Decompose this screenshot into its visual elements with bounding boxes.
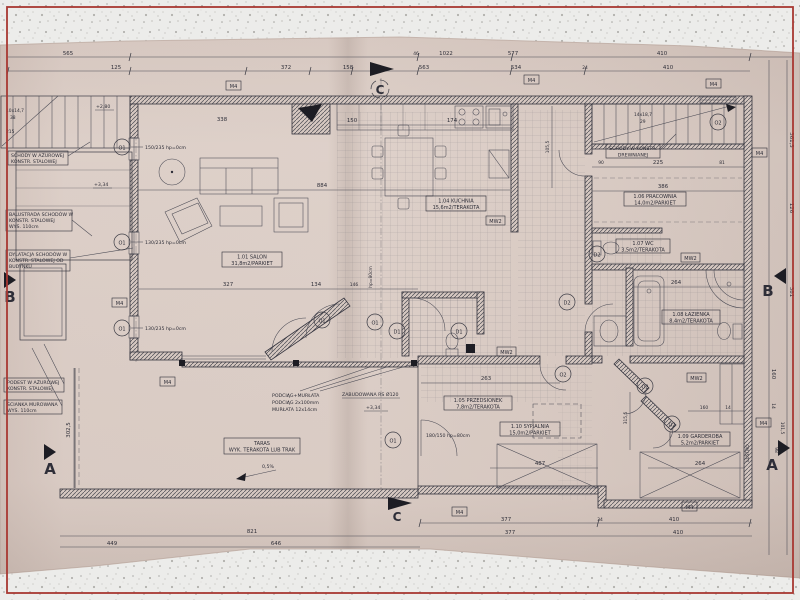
room-pracownia-line1: 1.06 PRACOWNIA — [633, 194, 677, 200]
svg-text:M4: M4 — [528, 78, 536, 84]
svg-text:D1: D1 — [455, 330, 462, 336]
win-spec-150-235: 150/235 hp=0cm — [145, 145, 186, 151]
dim-top-125: 125 — [111, 65, 121, 71]
svg-text:M4: M4 — [760, 421, 768, 427]
floor-plan-svg: 565 1022 46 577 410 125 372 158 563 534 … — [0, 0, 800, 600]
dim-inner-315-5: 315,5 — [623, 412, 629, 425]
dim-inner-146: 146 — [350, 282, 359, 288]
ann-lvl-334-terrace: +3,34 — [366, 405, 380, 411]
dim-inner-338: 338 — [217, 117, 228, 123]
ann-scianka-1: ŚCIANKA MUROWANA — [7, 401, 59, 408]
dim-bottom-34: 34 — [597, 517, 603, 523]
dim-bottom-377b: 377 — [505, 530, 515, 536]
svg-text:D2: D2 — [593, 253, 600, 259]
svg-text:B: B — [4, 288, 15, 306]
ann-schody-azur-1: SCHODY W AŻUROWEJ — [11, 152, 64, 159]
dim-top-577: 577 — [508, 51, 518, 57]
room-lazienka-line1: 1.08 ŁAZIENKA — [672, 312, 710, 318]
svg-text:O2: O2 — [668, 423, 675, 429]
ann-schody-drewn-1: SCHODY W KONSTR. — [609, 146, 657, 152]
win-spec-180-150: 180/150 hp=80cm — [426, 433, 470, 439]
dim-inner-264: 264 — [671, 280, 682, 286]
room-kuchnia-line1: 1.04 KUCHNIA — [438, 199, 474, 205]
dim-inner-487: 487 — [535, 461, 545, 467]
svg-text:O2: O2 — [641, 385, 648, 391]
svg-text:MW2: MW2 — [500, 350, 512, 356]
svg-text:M4: M4 — [116, 301, 124, 307]
win-spec-130-235-b: 130/235 hp=0cm — [145, 326, 186, 332]
screenshot-root: 565 1022 46 577 410 125 372 158 563 534 … — [0, 0, 800, 600]
dim-inner-225: 225 — [653, 160, 663, 166]
room-sypialnia-line2: 15,0m2/PARKIET — [509, 431, 551, 437]
svg-text:M4: M4 — [230, 84, 238, 90]
svg-text:O1: O1 — [118, 146, 125, 152]
ann-podciag-1: PODCIĄG+MURŁATA — [272, 393, 320, 399]
dim-inner-105-5: 105,5 — [545, 141, 551, 154]
dim-inner-264b: 264 — [695, 461, 706, 467]
dim-inner-134: 134 — [311, 282, 322, 288]
ann-podest-1: PODEST W AŻUROWEJ — [7, 379, 59, 386]
dim-inner-160: 160 — [700, 405, 709, 411]
ann-podest-2: KONSTR. STALOWEJ — [7, 386, 53, 392]
room-taras-line2: WYK. TERAKOTA LUB TRAK — [229, 448, 296, 454]
win-spec-130-235-a: 130/235 hp=0cm — [145, 240, 186, 246]
dim-inner-884: 884 — [317, 183, 328, 189]
dim-top-1022: 1022 — [439, 51, 453, 57]
room-garderoba-line1: 1.09 GARDEROBA — [678, 434, 723, 440]
svg-text:D2: D2 — [563, 301, 570, 307]
room-garderoba-line2: 5,2m2/PARKIET — [681, 441, 720, 447]
svg-text:O1: O1 — [318, 319, 325, 325]
room-wc-line2: 3,5m2/TERAKOTA — [621, 248, 665, 254]
svg-text:MW2: MW2 — [684, 256, 696, 262]
room-przedsionek-line1: 1.05 PRZEDSIONEK — [454, 398, 503, 404]
room-salon-line1: 1.01 SALON — [237, 255, 267, 261]
ann-podciag-2: PODCIĄG 2x100mm — [272, 400, 319, 406]
dim-inner-263: 263 — [481, 376, 491, 382]
room-wc-line1: 1.07 WC — [632, 241, 654, 247]
svg-text:O1: O1 — [389, 439, 396, 445]
svg-text:A: A — [766, 456, 778, 474]
ann-stairs-right-2: 29 — [640, 119, 646, 125]
ann-balustrada-1: BALUSTRADA SCHODÓW W — [9, 211, 73, 218]
svg-text:M4: M4 — [686, 505, 694, 511]
dim-top-563: 563 — [419, 65, 429, 71]
ann-podciag-3: MURŁATA 12x14cm — [272, 407, 318, 413]
dim-top-534: 534 — [511, 65, 522, 71]
ann-lvl-280: +2,80 — [96, 104, 110, 110]
svg-text:M4: M4 — [710, 82, 718, 88]
svg-text:M4: M4 — [756, 151, 764, 157]
svg-text:C: C — [393, 510, 402, 524]
dim-bottom-377: 377 — [501, 517, 511, 523]
svg-text:O2: O2 — [559, 373, 566, 379]
svg-text:M4: M4 — [164, 380, 172, 386]
dim-inner-81: 81 — [719, 160, 725, 166]
ann-dylatacja-1: DYLATACJA SCHODÓW W — [9, 251, 68, 258]
dim-inner-90: 90 — [598, 160, 604, 166]
svg-text:A: A — [44, 460, 56, 478]
ann-lustro: LUSTRO — [745, 444, 751, 462]
room-sypialnia-line1: 1.10 SYPIALNIA — [511, 424, 550, 430]
dim-right-160: 160 — [770, 369, 776, 380]
dim-top-565: 565 — [63, 51, 73, 57]
dim-bottom-449: 449 — [107, 541, 118, 547]
dim-right-14: 14 — [770, 403, 776, 409]
dim-bottom-410: 410 — [669, 517, 680, 523]
svg-text:C: C — [376, 83, 385, 97]
dim-left-302-5: 302,5 — [66, 422, 72, 437]
ann-schody-azur-2: KONSTR. STALOWEJ — [11, 159, 57, 165]
ann-schody-drewn-2: DREWNIANEJ — [618, 153, 648, 159]
dim-top-158: 158 — [343, 65, 354, 71]
svg-text:M4: M4 — [456, 510, 464, 516]
ann-lvl-334-left: +3,34 — [94, 182, 108, 188]
svg-text:B: B — [762, 282, 773, 300]
dim-top-410b: 410 — [663, 65, 674, 71]
ann-dylatacja-3: BUDYNKU — [9, 264, 32, 270]
room-kuchnia-line2: 15,6m2/TERAKOTA — [433, 205, 480, 211]
svg-text:MW2: MW2 — [489, 219, 501, 225]
ann-stairs-right-1: 14x18,7 — [634, 112, 652, 118]
dim-bottom-646: 646 — [271, 541, 282, 547]
svg-text:O2: O2 — [714, 121, 721, 127]
room-przedsionek-line2: 7,8m2/TERAKOTA — [456, 405, 500, 411]
ann-scianka-2: WYS. 110cm — [7, 408, 37, 414]
svg-text:O1: O1 — [118, 327, 125, 333]
ann-balustrada-2: KONSTR. STALOWEJ — [9, 218, 55, 224]
dim-top-372: 372 — [281, 65, 291, 71]
dim-top-410: 410 — [657, 51, 668, 57]
dim-bottom-821: 821 — [247, 529, 257, 535]
dim-top-24: 24 — [582, 65, 588, 71]
dim-inner-327: 327 — [223, 282, 233, 288]
ann-stairs-left-2: 38 — [10, 115, 16, 121]
room-pracownia-line2: 14,0m2/PARKIET — [634, 201, 676, 207]
dim-bottom-410b: 410 — [673, 530, 684, 536]
svg-text:D1: D1 — [393, 330, 400, 336]
svg-text:O1: O1 — [371, 321, 378, 327]
ann-stairs-left-1: 10x14,7 — [6, 108, 24, 114]
ann-balustrada-3: WYS. 110cm — [9, 224, 39, 230]
dim-inner-14: 14 — [725, 405, 731, 411]
svg-text:O1: O1 — [118, 241, 125, 247]
dim-inner-150: 150 — [347, 118, 358, 124]
dim-top-46: 46 — [413, 51, 419, 57]
room-taras-line1: TARAS — [253, 441, 270, 447]
svg-text:MW2: MW2 — [690, 376, 702, 382]
dim-inner-386: 386 — [658, 184, 669, 190]
ann-hp80-vertical: hp=80cm — [368, 266, 374, 288]
ann-zabudowana: ZABUDOWANA RS Ø120 — [342, 391, 399, 398]
room-lazienka-line2: 8,4m2/TERAKOTA — [669, 319, 713, 325]
room-salon-line2: 31,8m2/PARKIET — [231, 261, 273, 267]
ann-dylatacja-2: KONSTR. STALOWEJ OD — [9, 258, 64, 264]
dim-inner-174: 174 — [447, 118, 458, 124]
dim-right-101-5: 101,5 — [779, 422, 785, 435]
ann-slope: 0,5% — [262, 464, 274, 470]
